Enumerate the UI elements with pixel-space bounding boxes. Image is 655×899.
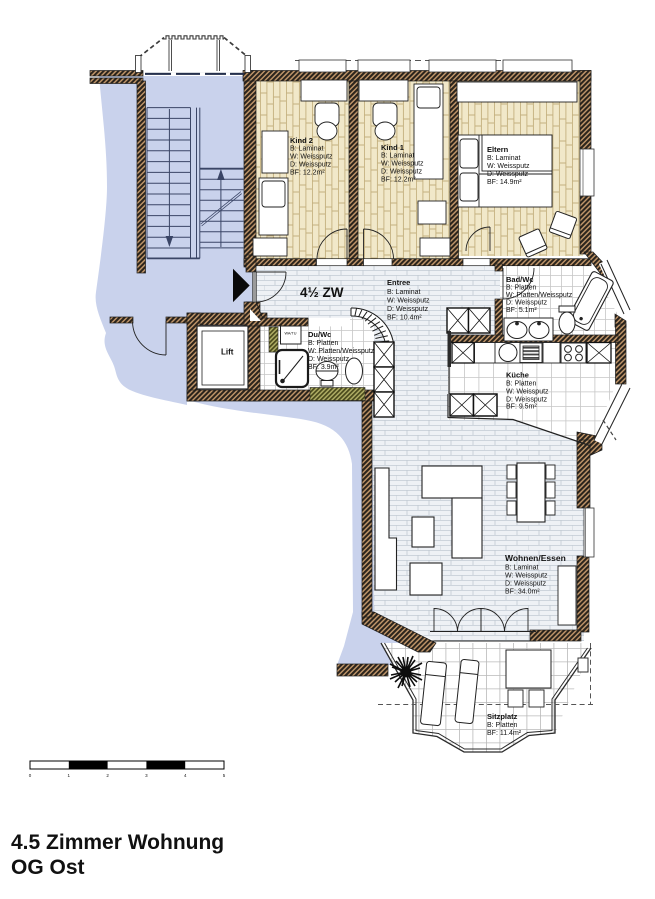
svg-text:BF: 11.4m²: BF: 11.4m² — [487, 730, 522, 737]
svg-text:B: Laminat: B: Laminat — [487, 155, 521, 162]
svg-text:W: Weissputz: W: Weissputz — [505, 573, 548, 580]
svg-text:D: Weissputz: D: Weissputz — [506, 397, 548, 404]
svg-text:B: Laminat: B: Laminat — [505, 565, 539, 572]
svg-text:Lift: Lift — [221, 348, 234, 357]
svg-text:B: Platten: B: Platten — [308, 340, 338, 347]
svg-text:Kind 2: Kind 2 — [290, 136, 313, 145]
svg-text:B: Laminat: B: Laminat — [387, 289, 421, 296]
svg-text:BF: 5.1m²: BF: 5.1m² — [506, 307, 537, 314]
svg-text:BF: 14.9m²: BF: 14.9m² — [487, 179, 522, 186]
svg-text:BF: 3.9m²: BF: 3.9m² — [308, 364, 339, 371]
svg-text:W: Weissputz: W: Weissputz — [381, 161, 424, 168]
svg-text:OG Ost: OG Ost — [11, 856, 85, 879]
svg-text:BF: 9.5m²: BF: 9.5m² — [506, 404, 537, 411]
svg-text:WA/TU: WA/TU — [284, 332, 296, 336]
svg-text:D: Weissputz: D: Weissputz — [381, 169, 423, 176]
svg-text:D: Weissputz: D: Weissputz — [505, 581, 547, 588]
svg-text:BF: 12.2m²: BF: 12.2m² — [381, 177, 416, 184]
svg-text:Kind 1: Kind 1 — [381, 143, 404, 152]
svg-text:B: Platten: B: Platten — [506, 381, 536, 388]
svg-text:D: Weissputz: D: Weissputz — [387, 306, 429, 313]
svg-text:W: Weissputz: W: Weissputz — [387, 298, 430, 305]
svg-text:W: Weissputz: W: Weissputz — [506, 389, 549, 396]
svg-text:W: Platten/Weissputz: W: Platten/Weissputz — [506, 292, 573, 299]
svg-text:4.5 Zimmer Wohnung: 4.5 Zimmer Wohnung — [11, 831, 224, 854]
svg-text:BF: 10.4m²: BF: 10.4m² — [387, 315, 422, 322]
svg-text:Küche: Küche — [506, 371, 529, 380]
svg-text:B: Platten: B: Platten — [506, 285, 536, 292]
svg-text:Sitzplatz: Sitzplatz — [487, 712, 518, 721]
svg-text:W: Weissputz: W: Weissputz — [290, 154, 333, 161]
svg-text:B: Laminat: B: Laminat — [290, 146, 324, 153]
svg-text:Entree: Entree — [387, 278, 410, 287]
svg-text:D: Weissputz: D: Weissputz — [506, 300, 548, 307]
svg-text:W: Platten/Weissputz: W: Platten/Weissputz — [308, 348, 375, 355]
svg-text:D: Weissputz: D: Weissputz — [308, 356, 350, 363]
svg-text:Bad/Wc: Bad/Wc — [506, 275, 534, 284]
svg-text:Wohnen/Essen: Wohnen/Essen — [505, 553, 566, 563]
svg-text:D: Weissputz: D: Weissputz — [487, 171, 529, 178]
svg-text:Eltern: Eltern — [487, 145, 509, 154]
svg-text:D: Weissputz: D: Weissputz — [290, 162, 332, 169]
svg-text:B: Laminat: B: Laminat — [381, 153, 415, 160]
svg-text:B: Platten: B: Platten — [487, 722, 517, 729]
svg-text:4½ ZW: 4½ ZW — [300, 285, 344, 300]
svg-text:Du/Wc: Du/Wc — [308, 330, 331, 339]
svg-text:BF: 12.2m²: BF: 12.2m² — [290, 170, 325, 177]
svg-text:W: Weissputz: W: Weissputz — [487, 163, 530, 170]
svg-text:BF: 34.0m²: BF: 34.0m² — [505, 589, 540, 596]
